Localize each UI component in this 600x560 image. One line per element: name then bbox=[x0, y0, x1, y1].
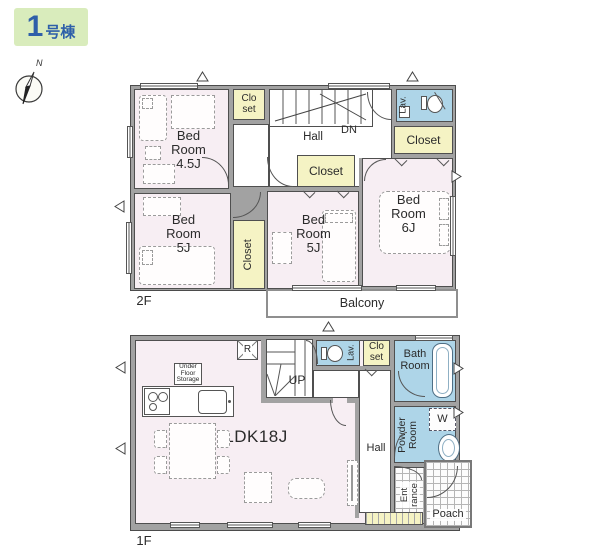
label-closet-right: Closet bbox=[394, 128, 453, 152]
window bbox=[227, 522, 273, 528]
fridge-space-icon: R bbox=[237, 340, 258, 360]
compass-north-label: N bbox=[36, 58, 43, 68]
vent-triangle-icon bbox=[406, 71, 419, 82]
fridge-label: R bbox=[243, 345, 252, 356]
floorplan-canvas: 1 号棟 N DN H bbox=[0, 0, 600, 560]
floor2-hall-label: Hall bbox=[295, 131, 331, 144]
building-badge: 1 号棟 bbox=[14, 8, 88, 46]
faucet-icon bbox=[228, 400, 231, 403]
desk-icon bbox=[171, 95, 215, 129]
window bbox=[415, 335, 453, 341]
underfloor-storage-box: Under Floor Storage bbox=[174, 363, 202, 385]
window bbox=[328, 83, 390, 89]
kitchen-counter bbox=[142, 386, 234, 417]
vent-triangle-icon bbox=[115, 361, 126, 374]
vent-triangle-icon bbox=[453, 362, 464, 375]
floor2-hall-extension bbox=[233, 124, 269, 187]
label-bedroom6: Bed Room 6J bbox=[376, 190, 441, 238]
floor1-label: 1F bbox=[131, 533, 157, 548]
pillow-icon bbox=[142, 98, 153, 109]
washer-space-icon: W bbox=[429, 408, 456, 431]
stairs-up-label: UP bbox=[283, 374, 311, 387]
label-closet-small: Clo set bbox=[233, 91, 265, 119]
label-closet-vertical: Closet bbox=[233, 220, 265, 289]
vent-triangle-icon bbox=[451, 170, 462, 183]
floor2-plan: DN Hall Bed Room 4.5J Clo set bbox=[130, 85, 456, 291]
tv-board-icon bbox=[347, 460, 358, 506]
sofa-icon bbox=[244, 472, 272, 503]
stairs-down-label: DN bbox=[336, 125, 362, 137]
window bbox=[298, 522, 331, 528]
floor2-label: 2F bbox=[131, 293, 157, 308]
label-entrance: Ent rance bbox=[395, 474, 424, 516]
floor1-corridor bbox=[313, 370, 359, 398]
window bbox=[396, 285, 436, 291]
vent-triangle-icon bbox=[322, 321, 335, 332]
window bbox=[126, 222, 132, 274]
chair-icon bbox=[217, 456, 230, 474]
sink-icon bbox=[438, 434, 460, 462]
label-bedroom5-left: Bed Room 5J bbox=[146, 211, 221, 257]
label-balcony: Balcony bbox=[268, 291, 456, 316]
tv-icon bbox=[351, 465, 353, 501]
vent-triangle-icon bbox=[114, 200, 125, 213]
vent-triangle-icon bbox=[453, 406, 464, 419]
washer-label: W bbox=[430, 409, 455, 430]
window bbox=[127, 126, 133, 158]
vent-triangle-icon bbox=[115, 442, 126, 455]
chair-icon bbox=[217, 430, 230, 448]
coffee-table-icon bbox=[288, 478, 325, 499]
wall-segment bbox=[359, 158, 362, 191]
label-porch: Poach bbox=[428, 508, 468, 522]
window bbox=[450, 196, 456, 256]
floor1-hall-label: Hall bbox=[362, 442, 390, 455]
stove-icon bbox=[144, 388, 170, 415]
window bbox=[140, 83, 198, 89]
underfloor-storage-label: Under Floor Storage bbox=[175, 364, 201, 384]
compass-icon: N bbox=[8, 58, 54, 108]
label-closet-1f: Clo set bbox=[363, 341, 390, 365]
bathtub-icon bbox=[432, 343, 453, 398]
window bbox=[170, 522, 200, 528]
balcony: Balcony bbox=[266, 289, 458, 318]
badge-number: 1 bbox=[27, 10, 44, 44]
chair-icon bbox=[154, 456, 167, 474]
toilet-icon bbox=[327, 345, 343, 362]
chair-icon bbox=[154, 430, 167, 448]
dining-table-icon bbox=[169, 423, 216, 479]
vent-triangle-icon bbox=[196, 71, 209, 82]
kitchen-sink-icon bbox=[198, 390, 227, 414]
label-lavatory-2f: Lav. bbox=[397, 90, 410, 120]
badge-suffix: 号棟 bbox=[45, 21, 75, 42]
entrance-step bbox=[365, 512, 423, 525]
window bbox=[292, 285, 362, 291]
stairs-down-icon bbox=[269, 89, 373, 127]
label-closet-mid: Closet bbox=[297, 157, 355, 185]
label-lavatory-1f: Lav. bbox=[345, 341, 358, 365]
label-bedroom5-mid: Bed Room 5J bbox=[281, 211, 346, 257]
floor1-plan: Hall UP R Under bbox=[130, 335, 460, 531]
